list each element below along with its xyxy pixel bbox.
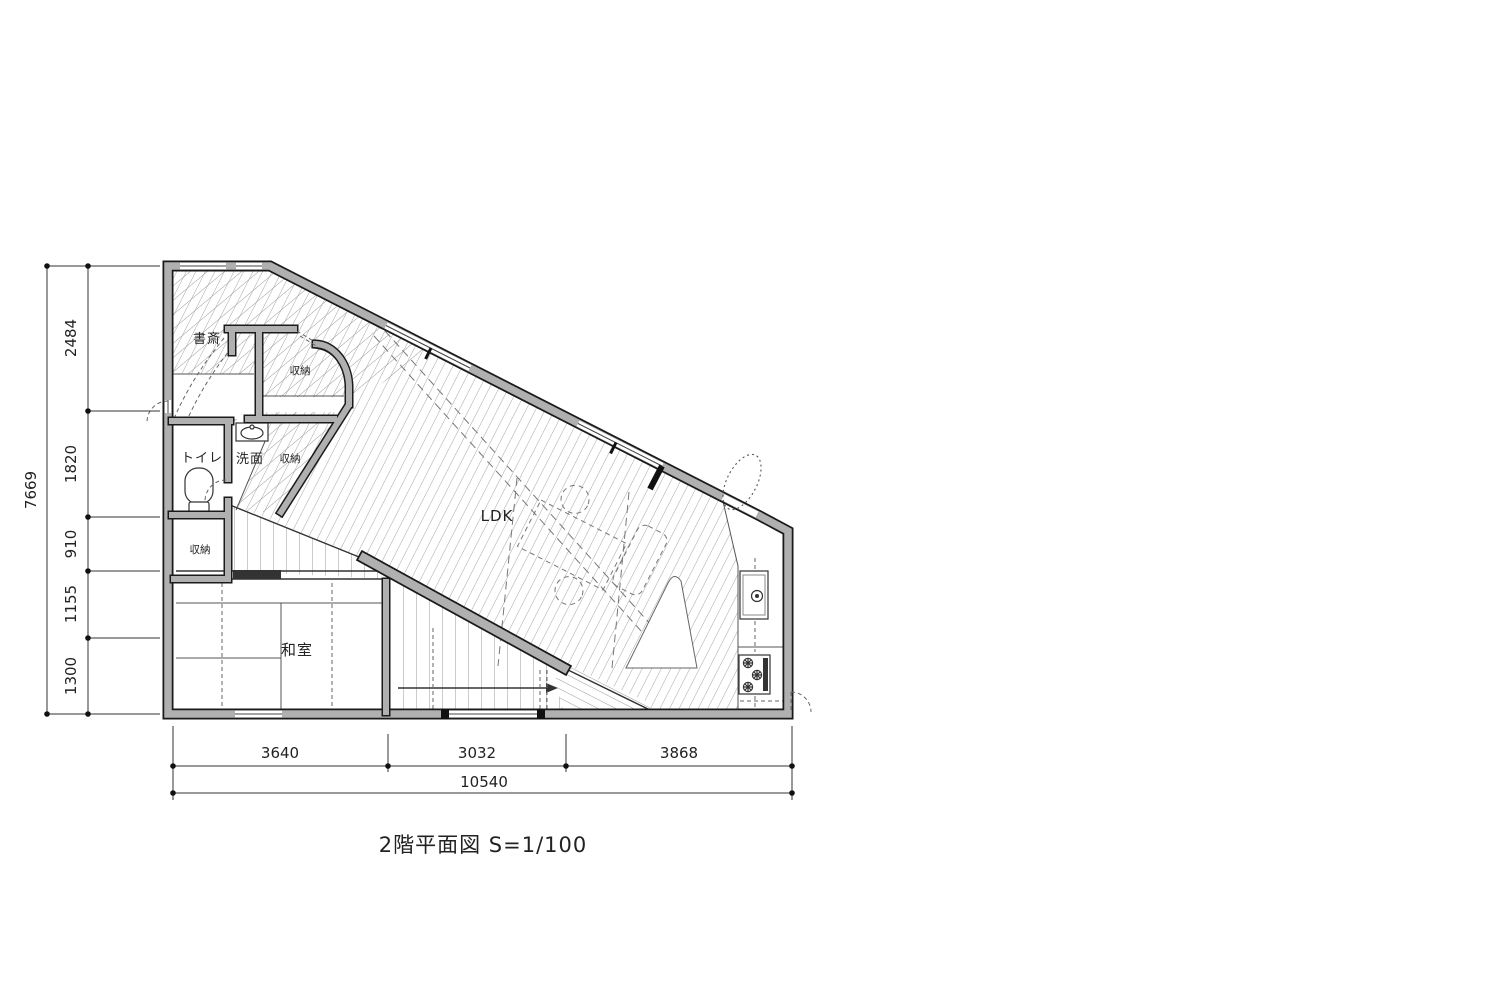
label-closet-top: 収納 [290,364,311,377]
door-jamb [537,709,545,719]
label-closet-mid: 収納 [280,452,301,465]
dim-left-4: 1300 [62,657,80,695]
kitchen-sink-fixture [740,571,768,619]
washroom-sink-fixture [236,423,268,441]
dimension-bottom: 3640 3032 3868 10540 [170,726,795,800]
dim-left-3: 1155 [62,585,80,623]
label-toilet: トイレ [181,451,223,466]
label-ldk: LDK [481,507,514,525]
dim-bottom-1: 3032 [458,744,496,762]
label-washroom: 洗面 [236,452,264,467]
door-jamb [441,709,449,719]
closet-top-lower-floor [262,397,346,412]
label-japanese-room: 和室 [281,641,313,659]
japanese-room-floor [172,581,386,712]
dimension-left: 2484 1820 910 1155 1300 7669 [22,263,160,717]
sliding-door-panel [233,570,281,579]
floor-plan-page: 書斎 収納 トイレ 洗面 収納 収納 LDK 和室 2484 1820 910 … [0,0,1500,1000]
floor-plan-canvas: 書斎 収納 トイレ 洗面 収納 収納 LDK 和室 2484 1820 910 … [0,0,1500,1000]
dim-bottom-total: 10540 [460,773,508,791]
drawing-title: 2階平面図 S=1/100 [379,833,587,857]
dim-left-0: 2484 [62,319,80,357]
dim-left-1: 1820 [62,445,80,483]
stove-fixture [739,655,770,694]
toilet-fixture [185,468,213,515]
dim-bottom-2: 3868 [660,744,698,762]
label-study: 書斎 [193,331,221,347]
dim-bottom-0: 3640 [261,744,299,762]
dim-left-total: 7669 [22,471,40,509]
backdoor-arc [791,692,811,712]
label-closet-left: 収納 [190,543,211,556]
dim-left-2: 910 [62,530,80,559]
